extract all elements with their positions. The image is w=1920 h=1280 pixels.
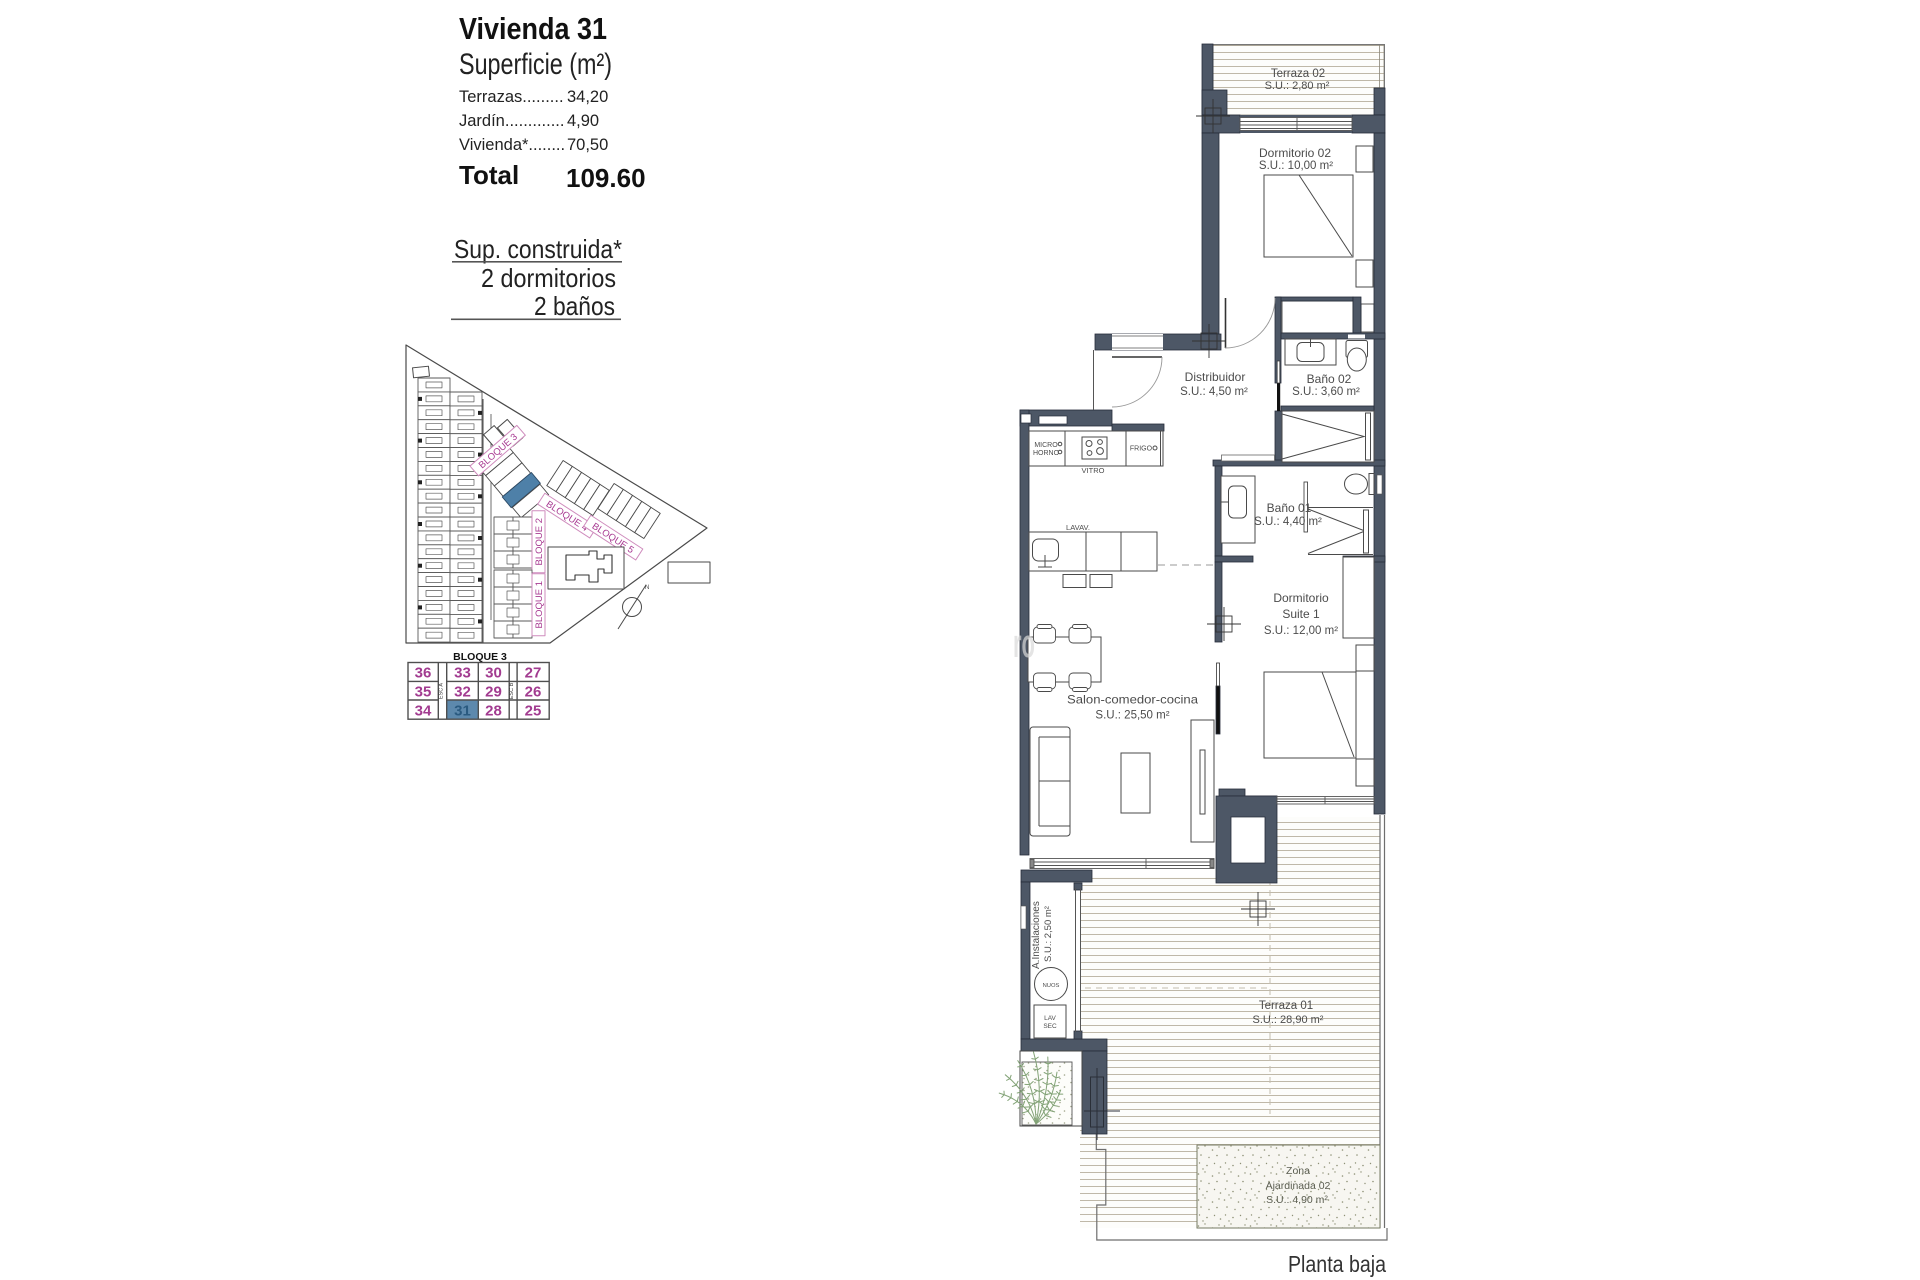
svg-text:LAV: LAV (1044, 1015, 1056, 1022)
svg-text:S.U.: 12,00 m²: S.U.: 12,00 m² (1264, 625, 1338, 637)
svg-text:Distribuidor: Distribuidor (1185, 370, 1246, 384)
svg-text:NUOS: NUOS (1043, 983, 1060, 989)
svg-text:Dormitorio 02: Dormitorio 02 (1259, 146, 1331, 160)
svg-text:S.U.: 2,50 m²: S.U.: 2,50 m² (1043, 906, 1054, 962)
svg-text:ESC B: ESC B (509, 682, 515, 699)
svg-text:Sup. construida*: Sup. construida* (454, 234, 622, 264)
svg-text:Baño 02: Baño 02 (1307, 372, 1352, 386)
svg-text:Terrazas.........: Terrazas......... (459, 88, 564, 106)
svg-text:34: 34 (415, 703, 432, 720)
svg-text:BLOQUE 1: BLOQUE 1 (534, 581, 545, 629)
svg-text:34,20: 34,20 (567, 88, 608, 106)
svg-text:S.U.: 4,50 m²: S.U.: 4,50 m² (1180, 386, 1248, 398)
svg-text:30: 30 (485, 665, 502, 682)
svg-text:33: 33 (454, 665, 471, 682)
svg-text:MICRO: MICRO (1034, 442, 1058, 449)
svg-text:LAVAV.: LAVAV. (1066, 523, 1090, 532)
svg-text:S.U.: 4,40 m²: S.U.: 4,40 m² (1254, 516, 1322, 528)
svg-text:Superficie (m²): Superficie (m²) (459, 48, 612, 81)
svg-text:ESC A: ESC A (439, 683, 445, 700)
svg-text:BLOQUE 3: BLOQUE 3 (453, 651, 507, 663)
svg-text:32: 32 (454, 684, 471, 701)
svg-text:Suite 1: Suite 1 (1282, 607, 1320, 621)
svg-text:S.U.: 25,50 m²: S.U.: 25,50 m² (1095, 710, 1169, 722)
svg-text:70,50: 70,50 (567, 136, 608, 154)
svg-text:Jardín.............: Jardín............. (459, 112, 564, 130)
svg-text:S.U.: 4,90 m²: S.U.: 4,90 m² (1266, 1194, 1328, 1206)
svg-text:Vivienda 31: Vivienda 31 (459, 11, 607, 46)
svg-text:27: 27 (525, 665, 542, 682)
svg-text:26: 26 (525, 684, 542, 701)
svg-text:Zona: Zona (1286, 1165, 1310, 1177)
svg-text:29: 29 (485, 684, 502, 701)
svg-text:FRIGO: FRIGO (1130, 446, 1153, 453)
svg-text:ro: ro (1013, 622, 1035, 666)
svg-text:Total: Total (459, 160, 519, 190)
svg-text:Terraza 01: Terraza 01 (1259, 1000, 1313, 1012)
svg-text:S.U.: 3,60 m²: S.U.: 3,60 m² (1292, 386, 1360, 398)
svg-text:2 dormitorios: 2 dormitorios (481, 263, 616, 293)
svg-text:A.Instalaciones: A.Instalaciones (1031, 901, 1042, 969)
svg-text:VITRO: VITRO (1082, 466, 1105, 475)
svg-text:HORNO: HORNO (1033, 450, 1060, 457)
svg-text:N: N (645, 585, 649, 591)
svg-text:Planta baja: Planta baja (1288, 1251, 1386, 1277)
svg-text:Baño 01: Baño 01 (1267, 501, 1312, 515)
svg-text:31: 31 (454, 703, 471, 720)
svg-text:35: 35 (415, 684, 432, 701)
svg-text:28: 28 (485, 703, 502, 720)
svg-text:SEC: SEC (1043, 1023, 1057, 1030)
svg-text:Terraza 02: Terraza 02 (1271, 68, 1325, 80)
svg-text:S.U.: 28,90 m²: S.U.: 28,90 m² (1253, 1014, 1324, 1026)
svg-text:Dormitorio: Dormitorio (1273, 591, 1329, 605)
svg-text:36: 36 (415, 665, 432, 682)
svg-text:Ajardinada 02: Ajardinada 02 (1266, 1180, 1331, 1192)
svg-text:Vivienda*........: Vivienda*........ (459, 136, 565, 154)
svg-text:S.U.: 2,80 m²: S.U.: 2,80 m² (1265, 80, 1330, 92)
svg-text:S.U.: 10,00 m²: S.U.: 10,00 m² (1259, 160, 1333, 172)
svg-text:109.60: 109.60 (566, 163, 646, 193)
svg-text:2 baños: 2 baños (534, 291, 615, 321)
svg-text:25: 25 (525, 703, 542, 720)
svg-text:4,90: 4,90 (567, 112, 599, 130)
svg-text:Salon-comedor-cocina: Salon-comedor-cocina (1067, 693, 1198, 707)
svg-text:BLOQUE 2: BLOQUE 2 (534, 518, 545, 566)
